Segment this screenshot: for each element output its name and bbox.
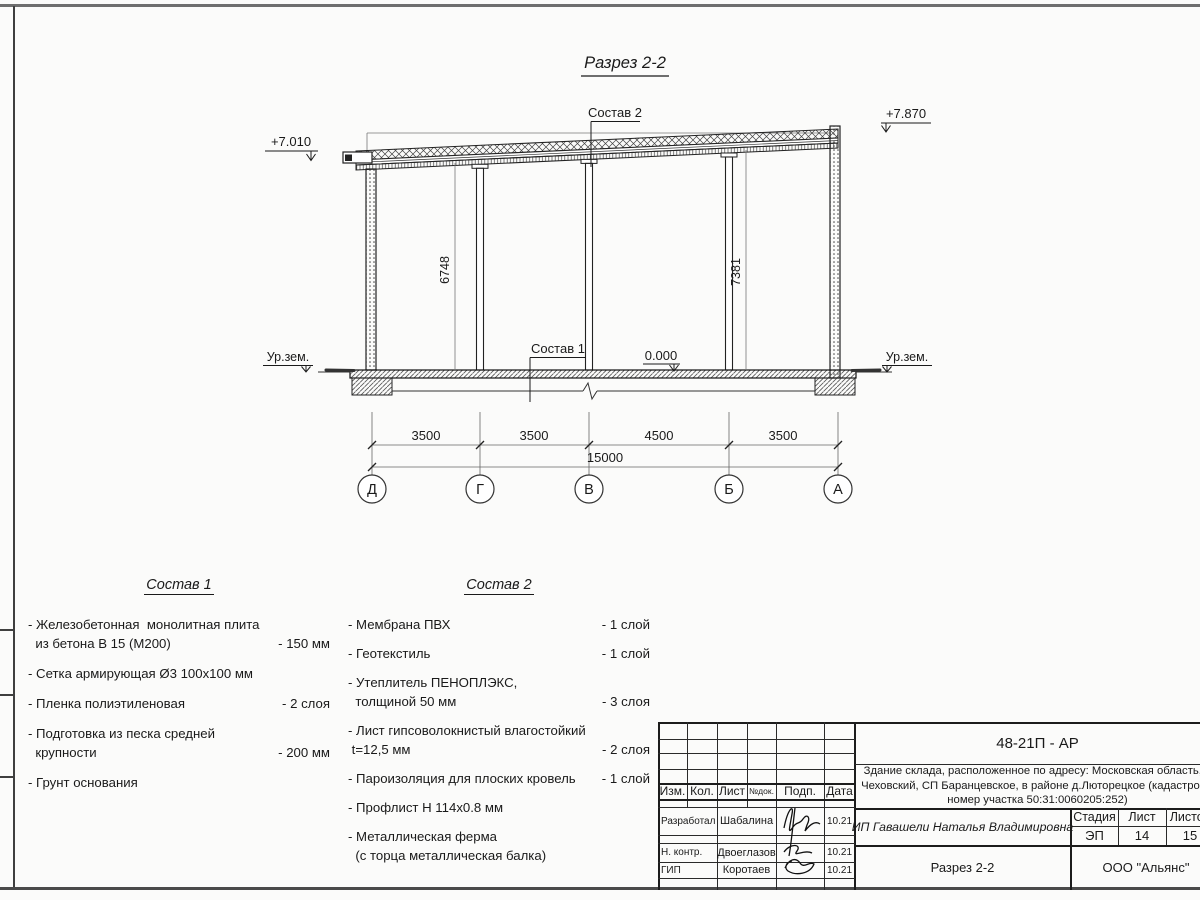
fold-mark <box>0 629 14 631</box>
object-description: Здание склада, расположенное по адресу: … <box>855 764 1200 808</box>
svg-text:Ур.зем.: Ур.зем. <box>267 350 309 364</box>
section-drawing: Разрез 2-2 <box>0 0 1200 565</box>
stamp-header-izm: Изм. <box>658 783 687 799</box>
sostav1-title: Состав 1 <box>28 576 330 595</box>
zero-level-mark: 0.000 <box>643 348 680 371</box>
list-item: - Металлическая ферма (с торца металличе… <box>348 827 650 865</box>
svg-text:15000: 15000 <box>587 450 623 465</box>
list-item: - Подготовка из песка средней крупности … <box>28 724 330 762</box>
list-item: - Мембрана ПВХ - 1 слой <box>348 615 650 634</box>
wall-axis-a <box>830 126 840 378</box>
drawing-sheet: { "drawing": { "title": "Разрез 2-2", "e… <box>0 0 1200 900</box>
stamp-date: 10.21 <box>824 843 855 862</box>
ground-level-mark-right: Ур.зем. <box>882 350 932 372</box>
stamp-name: Коротаев <box>717 862 776 878</box>
elevation-mark-left: +7.010 <box>265 134 318 161</box>
svg-text:4500: 4500 <box>645 428 674 443</box>
stamp-header-kol: Кол. <box>687 783 717 799</box>
dimension-total: 15000 <box>368 450 842 471</box>
svg-text:Б: Б <box>724 482 734 498</box>
stamp-name: Шабалина <box>717 807 776 835</box>
height-dimension-left: 6748 <box>438 163 455 370</box>
stamp-date: 10.21 <box>824 807 855 835</box>
floor-slab <box>350 370 856 399</box>
stamp-header-data: Дата <box>824 783 855 799</box>
svg-text:Состав 1: Состав 1 <box>531 341 585 356</box>
svg-text:3500: 3500 <box>520 428 549 443</box>
svg-text:7381: 7381 <box>729 258 743 286</box>
stamp-name: Двоеглазов <box>717 843 776 862</box>
sheets-value: 15 <box>1166 826 1200 845</box>
client-name: ИП Гавашели Наталья Владимировна <box>855 808 1070 845</box>
list-item: - Геотекстиль - 1 слой <box>348 644 650 663</box>
svg-text:А: А <box>833 482 843 498</box>
stamp-header-ndok: №док. <box>747 783 776 799</box>
stamp-role: Н. контр. <box>661 843 717 862</box>
sostav2-title: Состав 2 <box>348 576 650 595</box>
document-code: 48-21П - АР <box>855 722 1200 764</box>
svg-text:Г: Г <box>476 482 484 498</box>
sostav2-list: Состав 2 - Мембрана ПВХ - 1 слой - Геоте… <box>348 576 650 875</box>
dimension-chain: 3500 3500 4500 3500 <box>368 428 842 449</box>
axis-bubbles: Д Г В Б А <box>358 475 852 503</box>
svg-text:В: В <box>584 482 594 498</box>
list-item: - Железобетонная монолитная плита из бет… <box>28 615 330 653</box>
svg-text:+7.010: +7.010 <box>271 134 311 149</box>
sheet-value: 14 <box>1118 826 1166 845</box>
svg-text:3500: 3500 <box>769 428 798 443</box>
elevation-mark-right: +7.870 <box>881 106 931 132</box>
stamp-header-list: Лист <box>717 783 747 799</box>
wall-axis-d <box>366 169 376 370</box>
column-axis-g <box>472 164 488 370</box>
signature-strokes <box>776 802 824 884</box>
list-item: - Пленка полиэтиленовая - 2 слоя <box>28 694 330 713</box>
stage-label: Стадия <box>1071 808 1118 826</box>
list-item: - Лист гипсоволокнистый влагостойкий t=1… <box>348 721 650 759</box>
svg-text:Д: Д <box>367 482 377 498</box>
svg-text:Состав 2: Состав 2 <box>588 105 642 120</box>
ground-level-mark-left: Ур.зем. <box>263 350 313 372</box>
list-item: - Утеплитель ПЕНОПЛЭКС, толщиной 50 мм -… <box>348 673 650 711</box>
drawing-title: Разрез 2-2 <box>584 54 666 72</box>
sheet-section-title: Разрез 2-2 <box>855 845 1070 890</box>
fold-mark <box>0 694 14 696</box>
svg-text:3500: 3500 <box>412 428 441 443</box>
stamp-header-podp: Подп. <box>776 783 824 799</box>
list-item: - Пароизоляция для плоских кровель - 1 с… <box>348 769 650 788</box>
svg-text:Ур.зем.: Ур.зем. <box>886 350 928 364</box>
svg-text:0.000: 0.000 <box>645 348 678 363</box>
fold-mark <box>0 776 14 778</box>
sostav1-list: Состав 1 - Железобетонная монолитная пли… <box>28 576 330 803</box>
list-item: - Грунт основания <box>28 773 330 792</box>
axis-lines <box>372 412 838 475</box>
stage-value: ЭП <box>1071 826 1118 845</box>
sheet-label: Лист <box>1118 808 1166 826</box>
list-item: - Сетка армирующая Ø3 100х100 мм <box>28 664 330 683</box>
eave-beam-end <box>343 152 372 163</box>
stamp-role: Разработал <box>661 807 717 835</box>
stamp-role: ГИП <box>661 862 717 878</box>
list-item: - Профлист Н 114х0.8 мм <box>348 798 650 817</box>
svg-text:+7.870: +7.870 <box>886 106 926 121</box>
stamp-date: 10.21 <box>824 862 855 878</box>
title-block: Изм. Кол. Лист №док. Подп. Дата Разработ… <box>658 722 1200 890</box>
column-axis-v <box>581 159 597 370</box>
sheets-label: Листов <box>1166 808 1200 826</box>
company-name: ООО "Альянс" <box>1072 845 1200 890</box>
svg-text:6748: 6748 <box>438 256 452 284</box>
